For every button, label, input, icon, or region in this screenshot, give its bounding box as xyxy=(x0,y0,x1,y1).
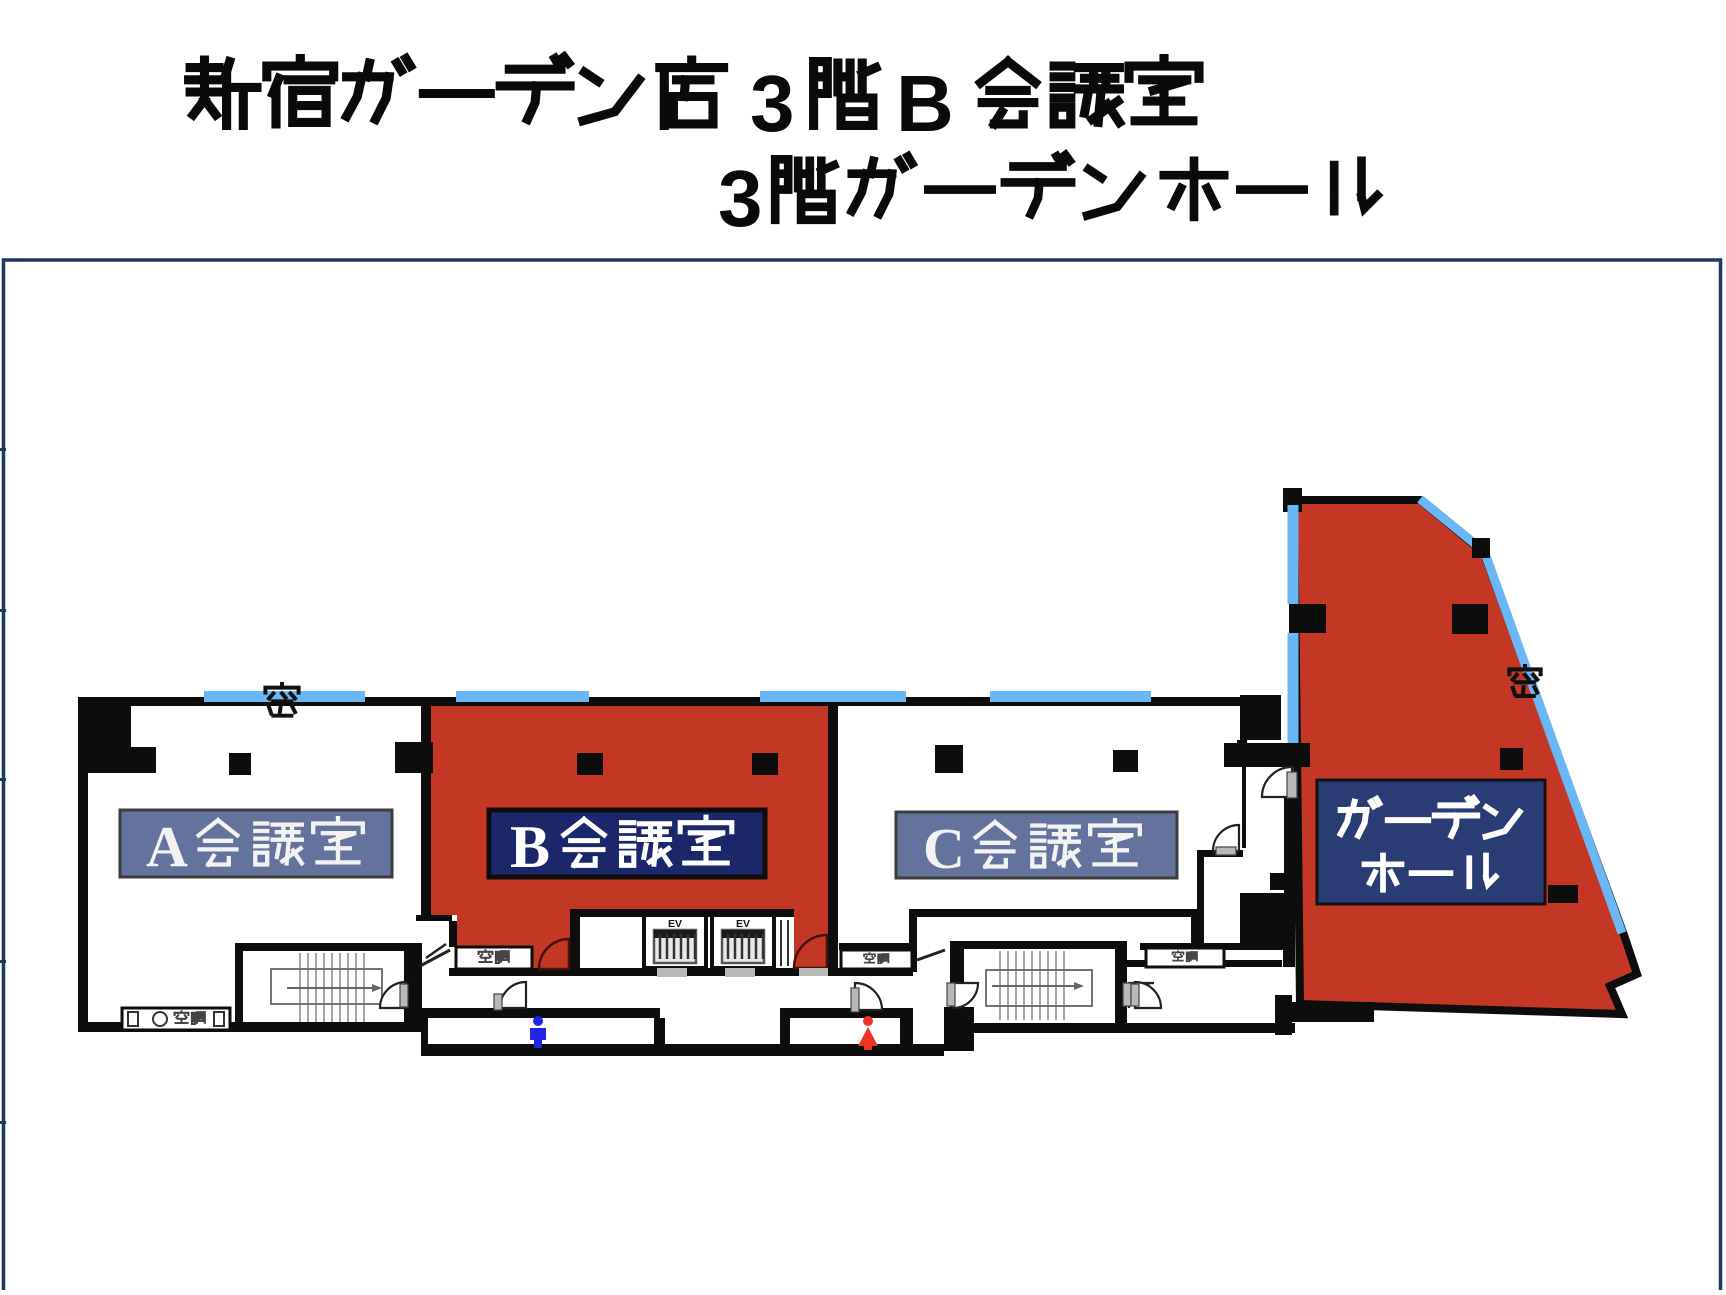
svg-text:EV: EV xyxy=(736,918,750,930)
svg-text:C: C xyxy=(923,816,965,881)
svg-text:3: 3 xyxy=(718,154,763,243)
svg-text:B: B xyxy=(510,814,550,880)
svg-text:B: B xyxy=(896,59,954,148)
svg-text:3: 3 xyxy=(750,59,795,148)
svg-text:EV: EV xyxy=(668,918,682,930)
svg-text:A: A xyxy=(146,814,188,879)
